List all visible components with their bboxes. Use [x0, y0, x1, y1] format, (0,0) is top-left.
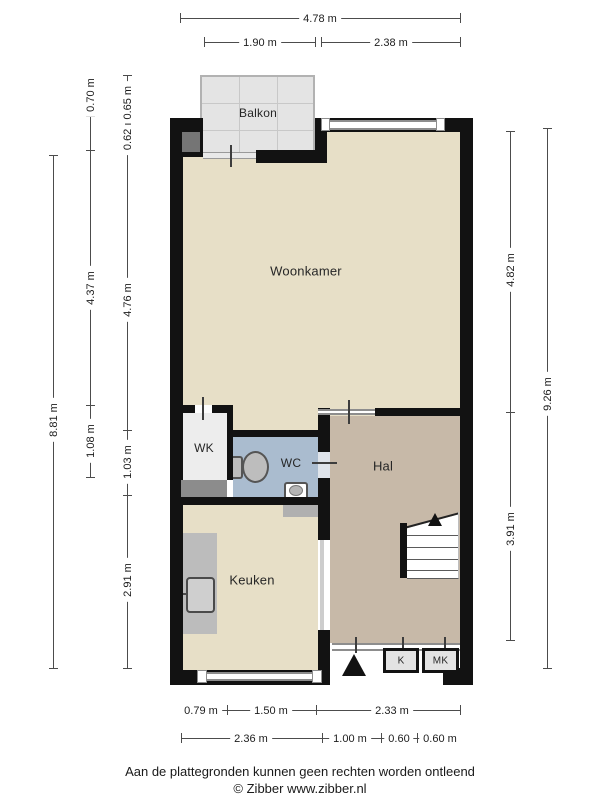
dim-tick: [460, 37, 461, 47]
keuken-label: Keuken: [229, 573, 274, 588]
woonkamer-floor: [183, 131, 460, 437]
dim-line: [510, 131, 511, 640]
dim-label: 0.60: [384, 733, 413, 745]
entrance-arrow-icon: [342, 654, 366, 676]
stair-tread: [407, 547, 458, 548]
balkon-label: Balkon: [239, 106, 277, 120]
woonkamer-hal-door-tick: [348, 400, 350, 424]
dim-tick: [417, 733, 418, 743]
dim-tick: [322, 733, 323, 743]
dim-label: 1.50 m: [250, 705, 292, 717]
dim-label: 0.79 m: [180, 705, 222, 717]
dim-tick: [123, 668, 132, 669]
dim-label: 0.60 m: [419, 733, 461, 745]
dim-tick: [543, 128, 552, 129]
shaft-block: [182, 132, 200, 152]
wall-left: [170, 118, 183, 685]
dim-label: 3.91 m: [505, 507, 517, 551]
closet-mk-box: MK: [422, 648, 459, 673]
dim-tick: [506, 131, 515, 132]
stair-tread: [407, 559, 458, 560]
dim-tick: [506, 412, 515, 413]
entrance-mullion-tick: [355, 637, 357, 653]
dim-tick: [543, 668, 552, 669]
dim-line: [181, 710, 460, 711]
window-top-end-left: [321, 118, 330, 131]
window-top-end-right: [436, 118, 445, 131]
dim-tick: [316, 705, 317, 715]
dim-label: 4.82 m: [505, 248, 517, 292]
wc-label: WC: [281, 456, 301, 470]
wall-stairs: [400, 523, 407, 578]
wc-door-gap: [318, 452, 330, 478]
wall-keuken-hal-upper: [318, 505, 330, 540]
dim-tick: [86, 150, 95, 151]
dim-tick: [315, 37, 316, 47]
toilet-bowl-icon: [242, 451, 269, 483]
wall-keuken-hal-lower: [318, 630, 330, 670]
stair-tread: [407, 535, 458, 536]
wall-wk-top-b: [212, 405, 233, 413]
dim-label-top-right: 2.38 m: [370, 37, 412, 49]
closet-k-label: K: [398, 655, 405, 666]
window-top: [327, 120, 438, 130]
dim-tick: [49, 155, 58, 156]
wall-wk-top-a: [183, 405, 195, 413]
closet-mk-label: MK: [433, 655, 448, 666]
dim-tick: [381, 733, 382, 743]
dim-label-top-total: 4.78 m: [299, 13, 341, 25]
stair-tread: [407, 570, 458, 571]
hal-label: Hal: [373, 459, 393, 474]
dim-label: 4.76 m: [122, 278, 134, 322]
balkon-door-tick: [230, 145, 232, 167]
woonkamer-hal-opening: [318, 409, 375, 415]
dim-tick: [123, 495, 132, 496]
wk-door-tick: [202, 397, 204, 420]
dim-tick: [86, 405, 95, 406]
dim-label: 1.03 m: [122, 440, 134, 484]
dim-tick: [123, 75, 132, 76]
dim-label-top-left: 1.90 m: [239, 37, 281, 49]
wall-right: [460, 118, 473, 685]
window-keuken: [203, 672, 315, 681]
stairs-up-arrow-icon: [428, 513, 442, 526]
dim-tick: [123, 430, 132, 431]
dim-label: 0.62 ı 0.65 m: [122, 81, 134, 155]
closet-k-box: K: [383, 648, 419, 673]
wk-label: WK: [194, 441, 214, 455]
dim-label: 1.08 m: [85, 419, 97, 463]
wc-door-tick: [312, 462, 337, 464]
dim-label: 2.91 m: [122, 558, 134, 602]
dim-tick: [204, 37, 205, 47]
window-keuken-end-left: [197, 670, 207, 683]
dim-label: 2.36 m: [230, 733, 272, 745]
dim-tick: [180, 13, 181, 23]
wall-keuken-top: [170, 497, 330, 505]
dim-label: 0.70 m: [85, 73, 97, 117]
woonkamer-label: Woonkamer: [270, 264, 342, 279]
kitchen-sink-icon: [186, 577, 215, 613]
dim-label: 1.00 m: [329, 733, 371, 745]
wc-sink-basin-icon: [289, 485, 303, 496]
footer-disclaimer: Aan de plattegronden kunnen geen rechten…: [125, 764, 475, 779]
dim-tick: [460, 13, 461, 23]
dim-tick: [86, 477, 95, 478]
dim-tick: [506, 640, 515, 641]
dim-label: 4.37 m: [85, 266, 97, 310]
dim-tick: [321, 37, 322, 47]
keuken-hal-threshold: [320, 540, 324, 630]
dim-label-left-outer: 8.81 m: [48, 398, 60, 442]
dim-tick: [460, 705, 461, 715]
dim-tick: [49, 668, 58, 669]
footer-credit: © Zibber www.zibber.nl: [233, 781, 366, 796]
dim-label-right-outer: 9.26 m: [542, 372, 554, 416]
dim-tick: [227, 705, 228, 715]
wk-duct-block: [181, 480, 227, 497]
dim-line: [181, 738, 460, 739]
dim-label: 2.33 m: [371, 705, 413, 717]
floor-plan: K MK Balkon Woonkamer WK WC Hal Keuken 4…: [0, 0, 600, 800]
dim-tick: [181, 733, 182, 743]
window-keuken-end-right: [312, 670, 322, 683]
wall-wc-top: [233, 430, 318, 437]
wall-wk-right: [227, 413, 233, 480]
wall-hal-top: [375, 408, 460, 416]
